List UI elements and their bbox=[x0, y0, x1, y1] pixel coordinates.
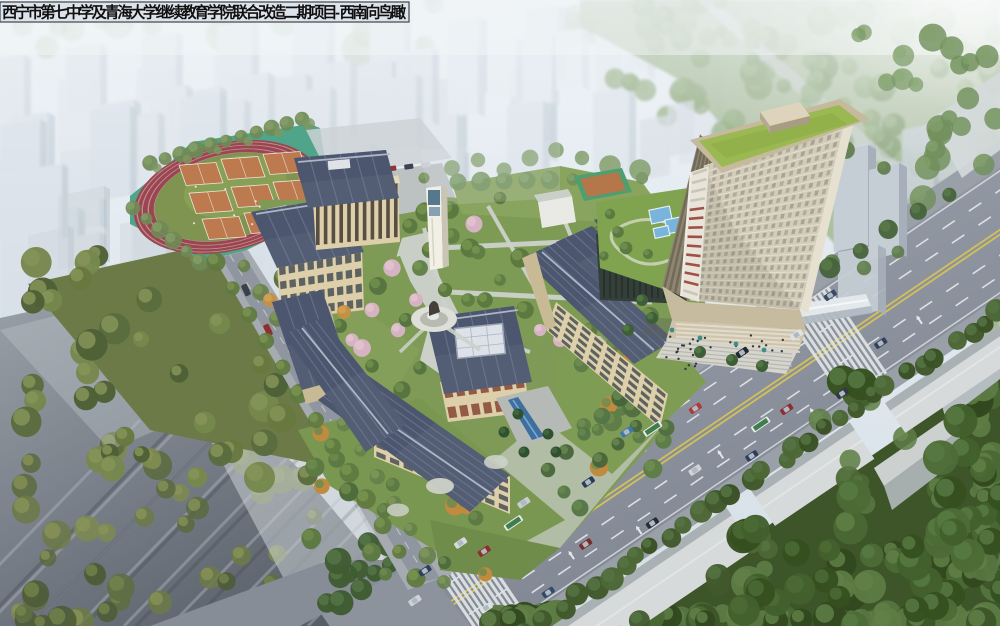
svg-text:西宁市第七中学及青海大学继续教育学院联合改造二期项目- 西南: 西宁市第七中学及青海大学继续教育学院联合改造二期项目- 西南向鸟瞰 bbox=[2, 4, 407, 22]
